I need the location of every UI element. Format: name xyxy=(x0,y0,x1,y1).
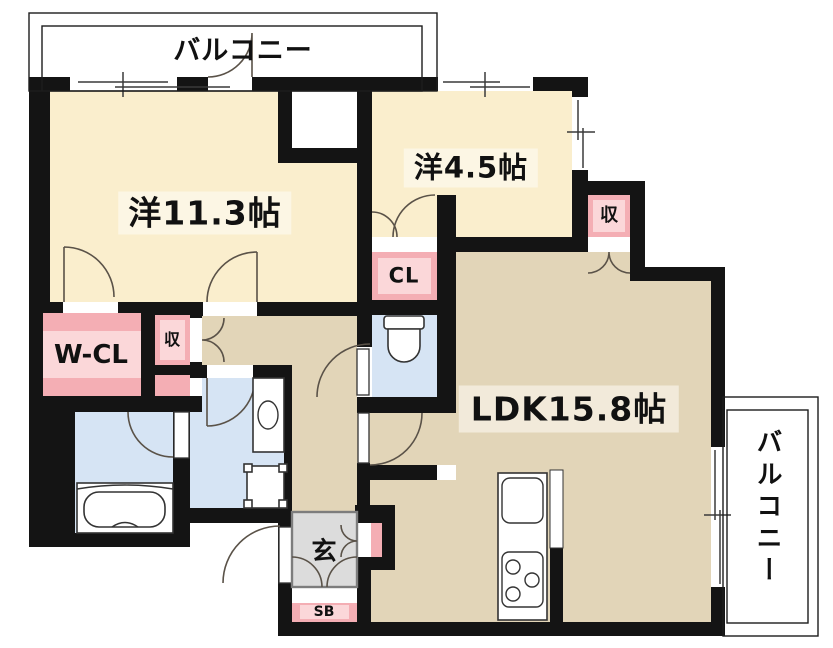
corridor-floor xyxy=(292,313,357,517)
exterior-notch xyxy=(292,91,357,148)
ldk-door xyxy=(358,413,369,463)
entrance-door-arc xyxy=(223,526,280,583)
storage-ldk-label: 収 xyxy=(600,207,618,225)
toilet-icon xyxy=(384,316,424,362)
room-western-11-3-label: 洋11.3帖 xyxy=(118,192,291,235)
balcony-door-opening xyxy=(208,77,252,91)
genkan-label: 玄 xyxy=(311,539,336,564)
balcony-right-label: バルコニー xyxy=(754,428,780,588)
window-room45-right xyxy=(572,97,588,170)
passage-floor xyxy=(357,413,456,465)
floor-plan: バルコニー 洋11.3帖 洋4.5帖 LDK15.8帖 W-CL CL 収 収 … xyxy=(0,0,833,648)
entrance-door xyxy=(279,527,292,583)
bathroom-door xyxy=(174,412,189,458)
ldk-east-floor xyxy=(630,267,711,622)
balcony-top-label: バルコニー xyxy=(173,38,312,65)
room-western-4-5-label: 洋4.5帖 xyxy=(404,149,538,188)
washing-machine-icon xyxy=(244,464,287,508)
toilet-door xyxy=(357,349,369,395)
floor-plan-drawing xyxy=(0,0,833,648)
storage-hall-label: 収 xyxy=(164,332,180,348)
storage-washroom-block xyxy=(155,375,190,396)
bathtub-icon xyxy=(77,483,173,533)
walk-in-closet-label: W-CL xyxy=(54,342,128,368)
entrance-step xyxy=(292,587,357,603)
washbasin-icon xyxy=(253,378,284,452)
ldk-label: LDK15.8帖 xyxy=(459,386,679,433)
closet-label: CL xyxy=(389,266,420,287)
shoe-box-label: SB xyxy=(314,605,335,619)
storage-genkan-block xyxy=(371,523,382,557)
